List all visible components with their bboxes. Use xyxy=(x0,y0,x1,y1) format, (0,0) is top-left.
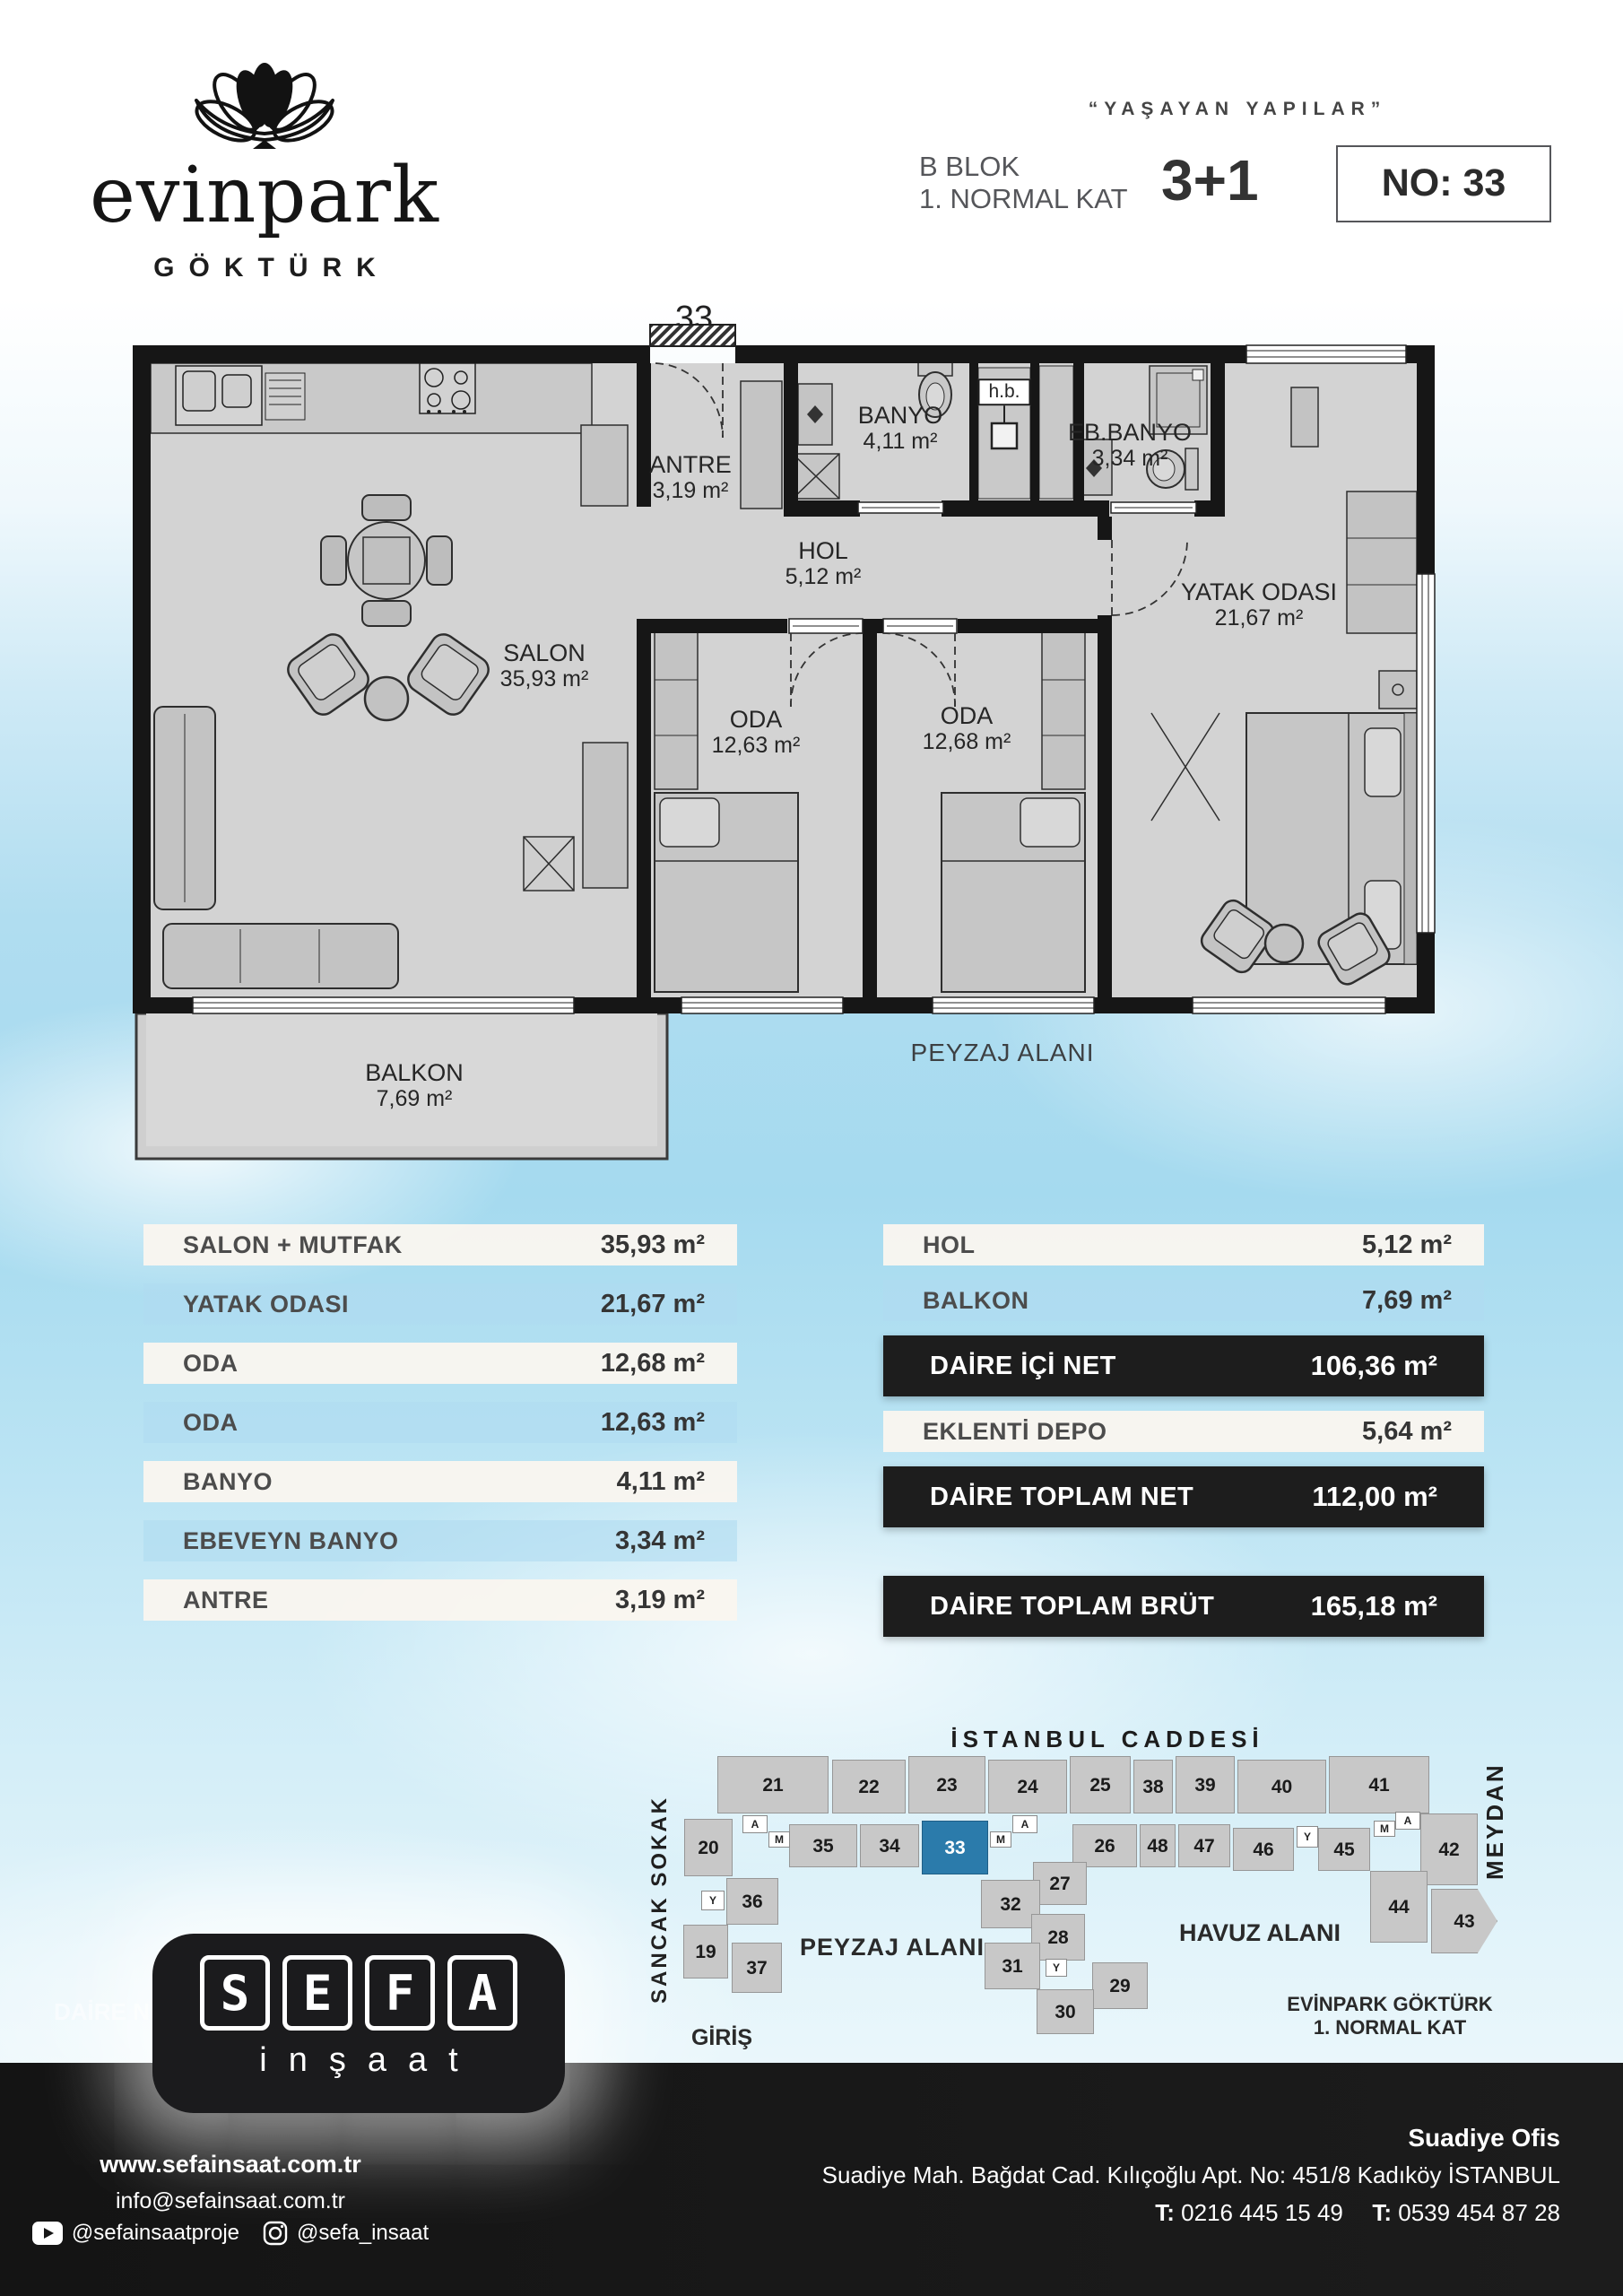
plan-room-area: 3,19 m² xyxy=(649,478,732,503)
room-name: BALKON xyxy=(923,1287,1029,1315)
room-name: EBEVEYN BANYO xyxy=(183,1527,399,1555)
room-name: DAİRE İÇİ NET xyxy=(930,1352,1116,1381)
phone2-label: T: xyxy=(1372,2199,1392,2226)
room-area: 5,12 m² xyxy=(1362,1231,1452,1260)
plan-room-label: ANTRE3,19 m² xyxy=(649,451,732,503)
brand-tagline: “YAŞAYAN YAPILAR” xyxy=(924,99,1551,120)
plan-room-name: h.b. xyxy=(988,381,1020,403)
plan-room-name: SALON xyxy=(500,639,589,666)
plan-room-area: 3,34 m² xyxy=(1068,446,1192,471)
plan-room-area: 21,67 m² xyxy=(1181,605,1337,631)
siteplan-core-M: M xyxy=(1374,1821,1395,1837)
siteplan-unit-23: 23 xyxy=(908,1756,985,1813)
room-area: 5,64 m² xyxy=(1362,1417,1452,1447)
table-row: EKLENTİ DEPO5,64 m² xyxy=(883,1411,1484,1452)
plan-room-label: BALKON7,69 m² xyxy=(365,1059,464,1111)
siteplan-unit-19: 19 xyxy=(683,1925,728,1979)
plan-peyzaj-label: PEYZAJ ALANI xyxy=(868,1039,1137,1067)
siteplan-core-A: A xyxy=(1012,1815,1037,1833)
phone2-number: 0539 454 87 28 xyxy=(1398,2199,1560,2226)
plan-room-name: ANTRE xyxy=(649,451,732,478)
siteplan-caption-line1: EVİNPARK GÖKTÜRK xyxy=(1282,1993,1497,2016)
siteplan-unit-25: 25 xyxy=(1070,1756,1131,1813)
instagram-icon xyxy=(263,2221,288,2246)
youtube-icon xyxy=(32,2222,63,2245)
siteplan-havuz-label: HAVUZ ALANI xyxy=(1152,1919,1367,1947)
sefa-letter: A xyxy=(447,1955,517,2031)
plan-room-area: 35,93 m² xyxy=(500,666,589,691)
siteplan-unit-46: 46 xyxy=(1233,1828,1294,1871)
lotus-flower-icon xyxy=(184,41,345,151)
plan-room-label: ODA12,68 m² xyxy=(923,702,1011,754)
table-row: EBEVEYN BANYO3,34 m² xyxy=(143,1520,737,1561)
siteplan-unit-36: 36 xyxy=(726,1878,778,1925)
siteplan-unit-37: 37 xyxy=(732,1943,782,1993)
table-row: SALON + MUTFAK35,93 m² xyxy=(143,1224,737,1265)
table-row: YATAK ODASI21,67 m² xyxy=(143,1283,737,1325)
phone1-label: T: xyxy=(1155,2199,1175,2226)
table-row: BALKON7,69 m² xyxy=(883,1280,1484,1321)
siteplan-core-M: M xyxy=(768,1831,790,1848)
room-name: ODA xyxy=(183,1409,239,1437)
room-area: 12,63 m² xyxy=(601,1408,705,1438)
siteplan-unit-29: 29 xyxy=(1092,1962,1148,2009)
room-area: 112,00 m² xyxy=(1312,1481,1437,1513)
siteplan-unit-42: 42 xyxy=(1420,1813,1478,1885)
siteplan-core-Y: Y xyxy=(1046,1959,1067,1977)
footer-office: Suadiye Ofis xyxy=(807,2124,1560,2152)
siteplan-unit-21: 21 xyxy=(717,1756,829,1813)
siteplan-unit-20: 20 xyxy=(684,1819,733,1876)
instagram-handle-text: @sefa_insaat xyxy=(297,2221,429,2246)
room-name: SALON + MUTFAK xyxy=(183,1231,403,1259)
siteplan-unit-22: 22 xyxy=(832,1760,906,1813)
room-area: 35,93 m² xyxy=(601,1231,705,1260)
footer-email: info@sefainsaat.com.tr xyxy=(52,2188,409,2214)
plan-room-name: ODA xyxy=(923,702,1011,729)
plan-room-name: BANYO xyxy=(858,402,943,429)
siteplan-unit-27: 27 xyxy=(1033,1862,1087,1905)
siteplan-caption: EVİNPARK GÖKTÜRK 1. NORMAL KAT xyxy=(1282,1993,1497,2040)
siteplan-unit-44: 44 xyxy=(1370,1871,1428,1943)
flyer-page: evinpark GÖKTÜRK “YAŞAYAN YAPILAR” B BLO… xyxy=(0,0,1623,2296)
footer-phones: T: 0216 445 15 49 T: 0539 454 87 28 xyxy=(807,2199,1560,2227)
plan-room-label: EB.BANYO3,34 m² xyxy=(1068,419,1192,471)
table-row: ANTRE3,19 m² xyxy=(143,1579,737,1621)
table-row: BANYO4,11 m² xyxy=(143,1461,737,1502)
street-istanbul-caddesi: İSTANBUL CADDESİ xyxy=(915,1726,1300,1753)
siteplan-unit-45: 45 xyxy=(1318,1828,1370,1871)
plan-room-label: ODA12,63 m² xyxy=(712,706,801,758)
room-area: 3,34 m² xyxy=(615,1526,705,1556)
youtube-handle: @sefainsaatproje xyxy=(32,2221,239,2246)
floor-label: 1. NORMAL KAT xyxy=(919,183,1128,215)
plan-room-label: HOL5,12 m² xyxy=(785,537,862,589)
sefa-logo-badge: S E F A inşaat xyxy=(152,1934,565,2113)
room-name: YATAK ODASI xyxy=(183,1291,349,1318)
plan-room-area: 4,11 m² xyxy=(858,429,943,454)
siteplan-core-Y: Y xyxy=(701,1891,725,1910)
square-meydan: MEYDAN xyxy=(1481,1754,1509,1889)
block-label: B BLOK xyxy=(919,151,1128,183)
table-row: DAİRE TOPLAM BRÜT165,18 m² xyxy=(883,1576,1484,1637)
sefa-letter: E xyxy=(282,1955,352,2031)
footer-website: www.sefainsaat.com.tr xyxy=(52,2151,409,2179)
siteplan-unit-24: 24 xyxy=(988,1760,1067,1813)
room-area: 7,69 m² xyxy=(1362,1286,1452,1316)
room-name: HOL xyxy=(923,1231,976,1259)
siteplan-core-Y: Y xyxy=(1297,1826,1318,1848)
room-area: 12,68 m² xyxy=(601,1349,705,1378)
room-area: 3,19 m² xyxy=(615,1586,705,1615)
plan-room-label: BANYO4,11 m² xyxy=(858,402,943,454)
block-floor-info: B BLOK 1. NORMAL KAT xyxy=(919,151,1128,214)
table-row: DAİRE İÇİ NET106,36 m² xyxy=(883,1335,1484,1396)
youtube-handle-text: @sefainsaatproje xyxy=(72,2221,239,2246)
plan-room-area: 12,63 m² xyxy=(712,733,801,758)
room-area: 21,67 m² xyxy=(601,1290,705,1319)
siteplan-entrance-label: GİRİŞ xyxy=(668,2025,776,2051)
table-row: ODA12,68 m² xyxy=(143,1343,737,1384)
room-area: 106,36 m² xyxy=(1311,1350,1437,1382)
phone1-number: 0216 445 15 49 xyxy=(1181,2199,1343,2226)
table-row: ODA12,63 m² xyxy=(143,1402,737,1443)
siteplan-core-A: A xyxy=(1395,1812,1420,1830)
table-row: DAİRE TOPLAM NET112,00 m² xyxy=(883,1466,1484,1527)
siteplan-unit-48: 48 xyxy=(1140,1824,1176,1867)
sefa-letter: F xyxy=(365,1955,435,2031)
siteplan-unit-33: 33 xyxy=(922,1821,988,1874)
room-name: BANYO xyxy=(183,1468,273,1496)
footer-socials: @sefainsaatproje @sefa_insaat xyxy=(52,2221,409,2246)
siteplan-core-M: M xyxy=(990,1831,1011,1848)
room-name: ODA xyxy=(183,1350,239,1378)
sefa-logo-letters: S E F A xyxy=(152,1934,565,2031)
plan-room-label: SALON35,93 m² xyxy=(500,639,589,691)
siteplan-unit-38: 38 xyxy=(1133,1760,1173,1813)
plan-room-name: EB.BANYO xyxy=(1068,419,1192,446)
room-name: DAİRE TOPLAM BRÜT xyxy=(930,1592,1214,1622)
room-name: ANTRE xyxy=(183,1587,269,1614)
plan-room-name: ODA xyxy=(712,706,801,733)
siteplan-unit-34: 34 xyxy=(860,1824,919,1867)
plan-room-name: BALKON xyxy=(365,1059,464,1086)
plan-room-name: YATAK ODASI xyxy=(1181,578,1337,605)
room-area: 165,18 m² xyxy=(1311,1590,1437,1622)
street-sancak-sokak: SANCAK SOKAK xyxy=(647,1783,673,2016)
room-area: 4,11 m² xyxy=(617,1467,705,1497)
siteplan-unit-39: 39 xyxy=(1176,1756,1235,1813)
plan-room-area: 7,69 m² xyxy=(365,1086,464,1111)
sefa-logo-subtitle: inşaat xyxy=(152,2041,565,2080)
siteplan-unit-31: 31 xyxy=(985,1943,1040,1989)
brand-name: evinpark xyxy=(76,151,453,240)
apartment-type: 3+1 xyxy=(1161,147,1259,213)
siteplan-core-A: A xyxy=(742,1815,768,1833)
table-row: HOL5,12 m² xyxy=(883,1224,1484,1265)
plan-room-label: h.b. xyxy=(977,378,1030,405)
footer-address: Suadiye Mah. Bağdat Cad. Kılıçoğlu Apt. … xyxy=(807,2161,1560,2189)
siteplan-unit-35: 35 xyxy=(789,1824,857,1867)
siteplan-unit-47: 47 xyxy=(1178,1824,1230,1867)
room-name: DAİRE TOPLAM NET xyxy=(930,1483,1193,1512)
siteplan-unit-26: 26 xyxy=(1072,1824,1137,1867)
plan-room-name: HOL xyxy=(785,537,862,564)
instagram-handle: @sefa_insaat xyxy=(263,2221,429,2246)
siteplan-unit-41: 41 xyxy=(1329,1756,1429,1813)
siteplan-unit-30: 30 xyxy=(1037,1989,1094,2034)
plan-room-area: 12,68 m² xyxy=(923,729,1011,754)
room-name: EKLENTİ DEPO xyxy=(923,1418,1107,1446)
plan-room-area: 5,12 m² xyxy=(785,564,862,589)
siteplan-unit-40: 40 xyxy=(1237,1760,1326,1813)
brand-location: GÖKTÜRK xyxy=(76,253,453,283)
siteplan-caption-line2: 1. NORMAL KAT xyxy=(1282,2016,1497,2039)
sefa-letter: S xyxy=(200,1955,270,2031)
unit-number-box: NO: 33 xyxy=(1336,145,1551,222)
siteplan-peyzaj-label: PEYZAJ ALANI xyxy=(785,1934,1000,1961)
siteplan-unit-43: 43 xyxy=(1431,1889,1497,1953)
plan-room-label: YATAK ODASI21,67 m² xyxy=(1181,578,1337,631)
